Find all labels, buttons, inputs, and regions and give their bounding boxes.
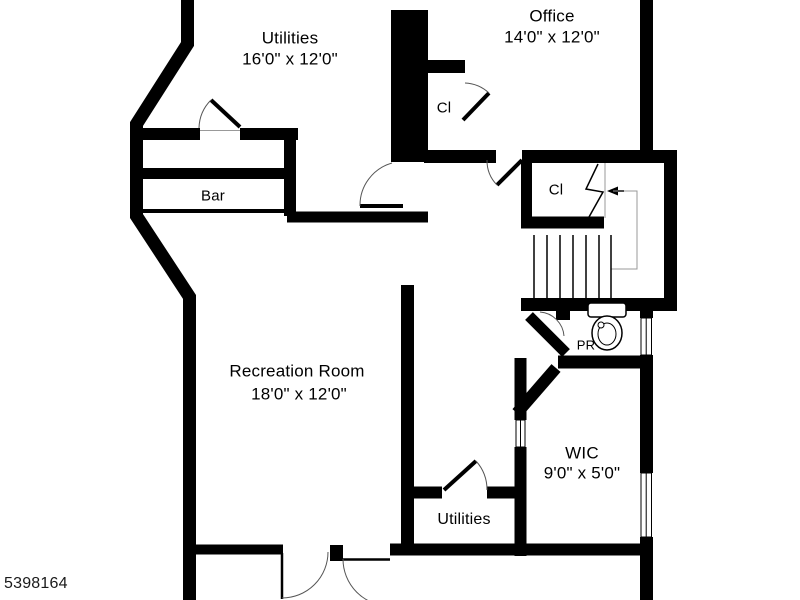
floor-plan-drawing — [0, 0, 800, 600]
floor-plan: Utilities 16'0" x 12'0" Office 14'0" x 1… — [0, 0, 800, 600]
utilities-bottom-door-arc — [476, 461, 487, 490]
room-dims-wic: 9'0" x 5'0" — [544, 465, 621, 482]
room-dims-office: 14'0" x 12'0" — [504, 29, 600, 46]
window-wic-right — [641, 473, 652, 537]
room-label-bar: Bar — [201, 189, 225, 204]
bar-counter-shelf — [137, 168, 285, 179]
powder-room-diagonal-wall — [529, 316, 566, 353]
bar-bottom-line — [137, 209, 296, 213]
room-label-recreation: Recreation Room — [229, 363, 364, 380]
room-dims-utilities-top: 16'0" x 12'0" — [242, 51, 338, 68]
stair-guide-line — [611, 191, 637, 297]
utilities-bottom-door-leaf — [444, 461, 476, 490]
room-label-closet-hall: Cl — [549, 183, 564, 198]
room-label-wic: WIC — [565, 445, 599, 462]
window-wic-left — [516, 420, 525, 447]
room-label-office: Office — [529, 8, 574, 25]
bifold-door-symbol — [586, 164, 603, 217]
room-dims-powder-room: 4'0" x 4'0" — [559, 354, 614, 366]
bar-right-wall — [284, 128, 296, 216]
left-exterior-wall — [137, 0, 190, 600]
bottom-door-pier — [330, 545, 343, 561]
closet-top-door-leaf — [463, 93, 489, 120]
hall-closet-door-leaf — [497, 160, 522, 185]
window-powder-room — [641, 318, 652, 355]
room-label-closet-top: Cl — [437, 101, 452, 116]
patio-door-left-arc — [282, 552, 328, 598]
bar-top-wall-left — [133, 128, 200, 140]
center-wall-mass — [391, 10, 428, 162]
room-label-utilities-bottom: Utilities — [437, 512, 490, 528]
utilities-top-door-leaf — [211, 100, 240, 127]
stair-treads — [534, 235, 611, 298]
patio-door-right-arc — [343, 559, 390, 600]
room-label-powder-room: PR — [577, 339, 595, 352]
listing-watermark: 5398164 — [4, 576, 68, 592]
hall-passage-door-arc — [360, 163, 392, 206]
room-dims-recreation: 18'0" x 12'0" — [251, 386, 347, 403]
stair-wall-stub — [556, 304, 570, 320]
utilities-top-door-arc — [199, 100, 211, 128]
closet-top-door-arc — [465, 83, 489, 93]
hall-closet-door-arc — [487, 160, 497, 185]
room-label-utilities-top: Utilities — [262, 30, 319, 47]
